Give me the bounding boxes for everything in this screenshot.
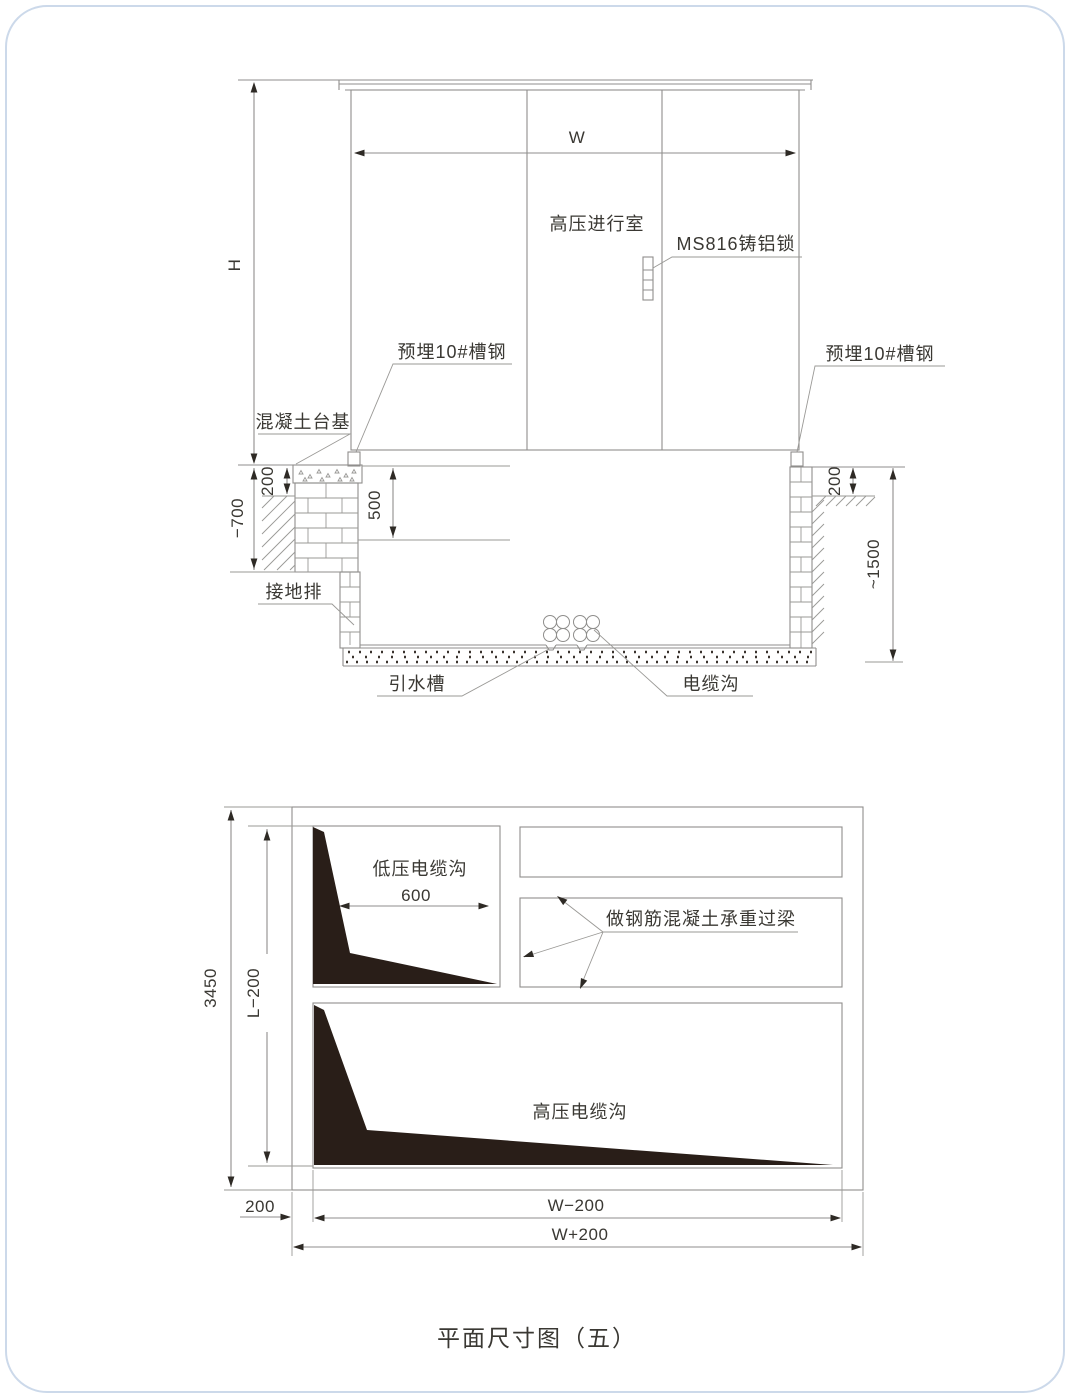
concrete-base-label: 混凝土台基 bbox=[256, 412, 351, 432]
technical-drawing: H W 高压进行室 MS816铸铝锁 预埋10#槽钢 bbox=[0, 0, 1070, 1398]
dim-600: 600 bbox=[339, 886, 489, 909]
lock-callout: MS816铸铝锁 bbox=[653, 234, 802, 268]
plan-view: 低压电缆沟 高压电缆沟 600 做钢筋混凝土承重过梁 bbox=[201, 807, 863, 1256]
dim-700: −700 bbox=[228, 468, 257, 570]
dim-200-right: 200 bbox=[825, 466, 856, 496]
hv-trench-label: 高压电缆沟 bbox=[533, 1102, 628, 1122]
cable-trench-label: 电缆沟 bbox=[683, 674, 740, 694]
dim-200-left: 200 bbox=[258, 466, 290, 496]
channel-steel-left bbox=[348, 452, 360, 466]
dim-L200-label: L−200 bbox=[244, 968, 263, 1018]
dim-500-label: 500 bbox=[365, 490, 384, 520]
door-lock bbox=[643, 257, 653, 300]
drain-label: 引水槽 bbox=[389, 674, 446, 694]
drawing-page: H W 高压进行室 MS816铸铝锁 预埋10#槽钢 bbox=[0, 0, 1070, 1398]
dim-1500-label: ~1500 bbox=[864, 539, 883, 589]
dim-200-bottom-label: 200 bbox=[245, 1197, 275, 1216]
dim-3450-label: 3450 bbox=[201, 968, 220, 1008]
hv-trench-wedge bbox=[314, 1005, 833, 1165]
gravel-bed bbox=[343, 648, 816, 666]
dim-W-minus-200: W−200 bbox=[314, 1196, 841, 1221]
ground-bar-label: 接地排 bbox=[266, 582, 323, 602]
channel-steel-right bbox=[791, 452, 803, 466]
top-right-opening bbox=[520, 827, 842, 877]
elevation-view: H W 高压进行室 MS816铸铝锁 预埋10#槽钢 bbox=[225, 80, 945, 696]
dim-200-bottom: 200 bbox=[240, 1197, 291, 1220]
dim-3450: 3450 bbox=[201, 810, 234, 1187]
concrete-cap bbox=[293, 465, 362, 483]
dim-1500: ~1500 bbox=[864, 468, 903, 662]
lock-label: MS816铸铝锁 bbox=[676, 234, 795, 254]
lintel-callout: 做钢筋混凝土承重过梁 bbox=[522, 893, 798, 990]
hv-room-label: 高压进行室 bbox=[550, 214, 645, 234]
dim-500: 500 bbox=[365, 468, 396, 538]
dim-200-left-label: 200 bbox=[258, 466, 277, 496]
foundation-wall-left bbox=[295, 483, 360, 648]
dim-H-label: H bbox=[225, 259, 244, 272]
embed-channel-left-callout: 预埋10#槽钢 bbox=[356, 342, 512, 452]
embed-channel-right-callout: 预埋10#槽钢 bbox=[797, 344, 945, 452]
drawing-caption: 平面尺寸图（五） bbox=[437, 1325, 637, 1351]
dim-600-label: 600 bbox=[401, 886, 431, 905]
embed-channel-right-label: 预埋10#槽钢 bbox=[825, 344, 934, 364]
lv-trench-label: 低压电缆沟 bbox=[373, 859, 468, 879]
dim-W-plus-200-label: W+200 bbox=[552, 1225, 609, 1244]
dim-W-plus-200: W+200 bbox=[293, 1225, 862, 1250]
dim-height-H: H bbox=[225, 82, 257, 464]
embed-channel-left-label: 预埋10#槽钢 bbox=[397, 342, 506, 362]
cabinet-roof bbox=[238, 80, 813, 90]
soil-hatch-left bbox=[262, 496, 295, 570]
lintel-label: 做钢筋混凝土承重过梁 bbox=[606, 909, 796, 929]
dim-width-W: W bbox=[354, 128, 796, 156]
drain-callout: 引水槽 bbox=[377, 649, 549, 696]
foundation-wall-right bbox=[790, 467, 812, 648]
dim-W-label: W bbox=[569, 128, 586, 147]
concrete-base-callout: 混凝土台基 bbox=[256, 412, 351, 464]
dim-W-minus-200-label: W−200 bbox=[548, 1196, 605, 1215]
dim-700-label: −700 bbox=[228, 498, 247, 538]
dim-L200: L−200 bbox=[244, 826, 313, 1166]
cable-bundles bbox=[544, 616, 600, 642]
dim-200-right-label: 200 bbox=[825, 466, 844, 496]
